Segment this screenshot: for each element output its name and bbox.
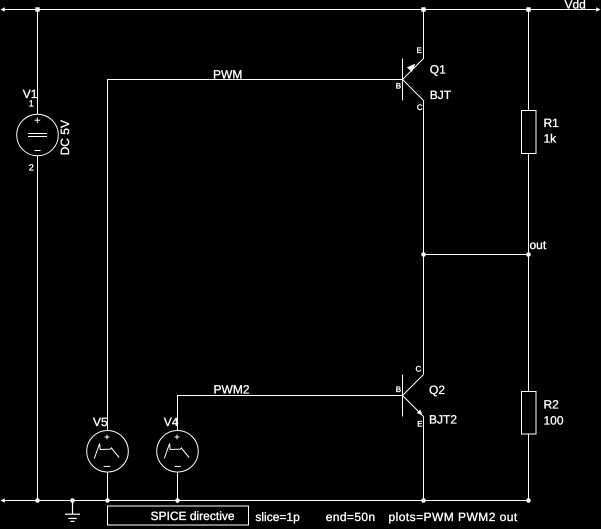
svg-text:V5: V5 [93, 415, 108, 429]
svg-text:E: E [417, 419, 422, 428]
svg-text:1: 1 [29, 98, 34, 108]
svg-text:PWM: PWM [213, 67, 242, 81]
svg-text:BJT: BJT [430, 88, 452, 102]
svg-text:slice=1p: slice=1p [255, 510, 300, 524]
svg-text:R2: R2 [544, 398, 560, 412]
svg-text:2: 2 [29, 163, 34, 173]
svg-text:C: C [416, 365, 422, 374]
svg-text:V4: V4 [164, 415, 179, 429]
svg-text:PWM2: PWM2 [214, 383, 250, 397]
svg-text:1k: 1k [544, 132, 558, 146]
svg-text:100: 100 [544, 413, 564, 427]
svg-text:B: B [396, 385, 401, 394]
svg-text:E: E [417, 46, 422, 55]
svg-text:Q2: Q2 [429, 383, 445, 397]
svg-text:end=50n: end=50n [326, 510, 376, 524]
svg-text:plots=PWM PWM2 out: plots=PWM PWM2 out [389, 510, 518, 524]
svg-text:BJT2: BJT2 [429, 412, 457, 426]
svg-text:B: B [396, 81, 401, 90]
svg-text:out: out [530, 238, 547, 252]
svg-text:Vdd: Vdd [565, 0, 586, 12]
svg-text:Q1: Q1 [430, 63, 446, 77]
svg-text:R1: R1 [544, 116, 560, 130]
svg-text:SPICE directive: SPICE directive [151, 509, 235, 523]
svg-text:C: C [417, 103, 423, 112]
svg-text:DC 5V: DC 5V [58, 120, 72, 155]
